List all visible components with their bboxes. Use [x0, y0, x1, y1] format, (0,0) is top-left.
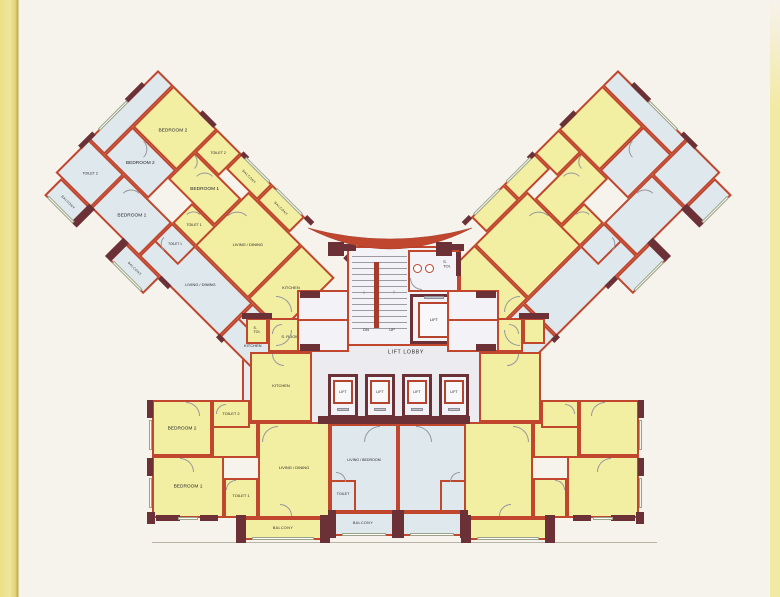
room-label: LIVING / DINING [279, 466, 309, 471]
stair-up-label: UP [389, 328, 395, 333]
service-shaft-right [447, 290, 499, 352]
lift-label: LIFT [413, 390, 420, 394]
wall-chunk [476, 291, 496, 298]
wall-chunk [476, 344, 496, 351]
bl-s-toi [523, 318, 545, 344]
wall-chunk [147, 512, 155, 524]
window [410, 533, 454, 536]
stair-up-arrow: ↑ [393, 289, 396, 295]
room-label: LIVING / BEDROOM [347, 458, 380, 462]
fireman-lift-label: LIFT [430, 318, 438, 323]
room-label: S.TOI. [254, 326, 261, 334]
room-label: LIVING / DINING [233, 242, 263, 247]
wall-chunk [638, 400, 644, 418]
lift-door [337, 408, 349, 411]
window [593, 517, 613, 520]
studio-left: LIVING / BEDROOM TOILET BALCONY [330, 424, 398, 538]
lift-door [448, 408, 460, 411]
room-label: BALCONY [273, 526, 293, 530]
window [477, 537, 539, 540]
wall-chunk [636, 512, 644, 524]
staircase [352, 256, 407, 334]
wall-chunk [519, 313, 549, 319]
bl-toilet2 [541, 400, 579, 428]
service-shaft-left [297, 290, 349, 352]
room-label: TOILET 1 [232, 494, 249, 499]
stair-dn-label: DN [363, 328, 369, 333]
room-label: BEDROOM 1 [117, 212, 146, 218]
entrance-canopy [300, 222, 480, 262]
wall-chunk [611, 515, 635, 521]
room-label: BEDROOM 2 [168, 425, 197, 431]
room-label: BEDROOM 1 [190, 186, 219, 192]
stair-down-arrow: ↓ [363, 289, 366, 295]
room-label: TOILET 1 [168, 242, 182, 246]
page-right-edge [770, 0, 780, 597]
canopy-arc-icon [300, 222, 480, 262]
room-label: BALCONY [353, 521, 373, 525]
room-label: TOILET 2 [210, 151, 225, 155]
wall-chunk [460, 510, 468, 538]
lift-door [411, 408, 423, 411]
page-left-edge [0, 0, 19, 597]
stair-spine-wall [374, 262, 379, 328]
wall-chunk [156, 515, 180, 521]
wall-chunk [147, 458, 153, 476]
room-label: TOILET [337, 492, 350, 496]
lift-label: LIFT [339, 390, 346, 394]
wall-chunk [236, 515, 246, 543]
studio-right [398, 424, 466, 538]
room-label: LIVING / DINING [185, 283, 215, 288]
window [252, 537, 314, 540]
room-label: KITCHEN [272, 384, 290, 389]
room-label: TOILET 1 [186, 223, 201, 227]
window [178, 517, 198, 520]
lift-label: LIFT [450, 390, 457, 394]
lift-door [374, 408, 386, 411]
lift-door [424, 296, 444, 299]
window [639, 420, 642, 450]
shaft-divider [447, 319, 499, 321]
window [149, 420, 152, 450]
room-label: TOILET 2 [82, 171, 97, 175]
room-label: TOILET 2 [222, 412, 239, 417]
basin-icon [425, 264, 434, 273]
wall-chunk [545, 515, 555, 543]
wall-chunk [396, 510, 404, 538]
room-label: BEDROOM 2 [126, 160, 155, 166]
window [149, 478, 152, 508]
wall-chunk [300, 344, 320, 351]
shaft-divider [297, 319, 349, 321]
floor-plan-page: BEDROOM 2 TOILET 2 BALCONY BEDROOM 1 TOI… [0, 0, 780, 597]
wall-chunk [300, 291, 320, 298]
wall-chunk [638, 458, 644, 476]
studio-toilet [440, 480, 466, 512]
wall-chunk [147, 400, 153, 418]
ground-line [152, 542, 657, 543]
wall-chunk [328, 510, 336, 538]
basin-icon [413, 264, 422, 273]
wall-chunk [573, 515, 591, 521]
bl-bedroom2 [579, 400, 639, 456]
lift-label: LIFT [376, 390, 383, 394]
lift-lobby-label: LIFT LOBBY [388, 349, 424, 355]
window [342, 533, 386, 536]
window [639, 478, 642, 508]
wall-chunk [242, 313, 272, 319]
room-label: BEDROOM 1 [174, 483, 203, 489]
wall-chunk [200, 515, 218, 521]
room-label: BEDROOM 2 [158, 127, 187, 133]
